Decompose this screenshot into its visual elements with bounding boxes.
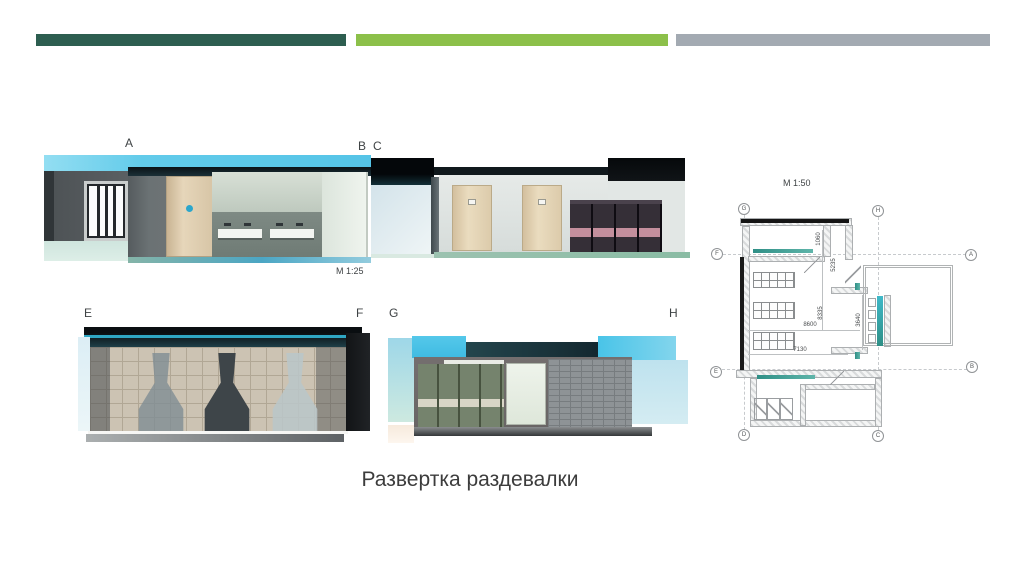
wall-corner-column — [431, 177, 439, 255]
window-pane — [100, 186, 105, 236]
scale-label-1-25: М 1:25 — [336, 266, 364, 276]
plan-wall-left-black — [740, 257, 744, 371]
dark-fascia-left — [371, 158, 434, 185]
ceiling-cyan-line — [84, 335, 362, 338]
door-swing — [804, 257, 820, 273]
plan-teal-mark — [855, 352, 860, 359]
plan-washbasin — [868, 322, 876, 331]
floor-plan: М 1:50 G H F A E B D C — [705, 175, 997, 463]
elevation-label-g: G — [389, 306, 399, 320]
faucet-icon — [224, 223, 231, 226]
grid-bubble-g: G — [738, 203, 750, 215]
dimension-line — [748, 354, 848, 355]
elevation-label-f: F — [356, 306, 364, 320]
dimension-7130: 7130 — [787, 346, 813, 354]
plan-bench-lockers — [753, 272, 795, 288]
plan-shower-stall — [754, 398, 767, 420]
wood-door — [522, 185, 562, 251]
plan-wall-top-black — [741, 219, 849, 223]
plan-wall-lower-bottom — [750, 420, 882, 427]
green-lockers — [418, 364, 504, 427]
grid-bubble-c: C — [872, 430, 884, 442]
slide-title: Развертка раздевалки — [300, 468, 640, 492]
baseboard-light — [371, 254, 434, 258]
wood-door — [166, 176, 214, 257]
elevation-label-b: B — [358, 139, 367, 153]
elevation-label-c: C — [373, 139, 382, 153]
plan-locker-band — [753, 249, 813, 253]
light-blue-wall — [632, 360, 688, 424]
grid-bubble-f: F — [711, 248, 723, 260]
dimension-5235: 5235 — [830, 252, 838, 278]
faucet-icon — [244, 223, 251, 226]
door-sign-plate — [538, 199, 546, 205]
cyan-band-left — [412, 336, 466, 358]
light-blue-wall — [371, 185, 431, 255]
scale-label-1-50: М 1:50 — [783, 178, 811, 188]
plan-shower-stall — [767, 398, 780, 420]
plan-washbasin — [868, 298, 876, 307]
light-edge-column — [388, 338, 414, 422]
elevation-ab — [44, 155, 371, 263]
roof-strip — [434, 167, 608, 175]
dimension-8600: 8600 — [797, 321, 823, 329]
accent-bar-light-green — [356, 34, 668, 46]
light-edge — [78, 337, 90, 431]
window — [84, 181, 128, 241]
plan-washstand-counter — [877, 296, 883, 346]
dimension-3640: 3640 — [855, 307, 863, 333]
mirror-band — [212, 172, 322, 212]
shade-left — [90, 347, 110, 431]
baseboard-green — [434, 252, 690, 258]
plan-wall-lower-inner-v — [800, 384, 806, 426]
plan-wall-right-upper — [845, 225, 853, 260]
accent-bar-gray — [676, 34, 990, 46]
dark-fascia-right — [608, 158, 685, 181]
wood-door — [452, 185, 492, 251]
window-pane — [116, 186, 123, 236]
plan-bench-lockers — [753, 302, 795, 319]
elevation-label-h: H — [669, 306, 678, 320]
grid-bubble-b: B — [966, 361, 978, 373]
door-sign-plate — [468, 199, 476, 205]
dark-lockers — [570, 200, 662, 252]
faucet-icon — [296, 223, 303, 226]
elevation-label-e: E — [84, 306, 93, 320]
plan-washbasin — [868, 334, 876, 343]
window-pane — [89, 186, 97, 236]
floor-patch — [388, 425, 414, 443]
aqua-base-panel — [44, 241, 128, 261]
sink-counter — [270, 229, 314, 238]
plan-locker-band — [757, 375, 815, 379]
faucet-icon — [276, 223, 283, 226]
dimension-1060: 1060 — [815, 226, 823, 252]
baseboard-dark — [414, 427, 652, 436]
dimension-line — [748, 330, 860, 331]
baseboard-gray — [86, 434, 344, 442]
door-sign-badge — [186, 205, 193, 212]
sink-counter — [218, 229, 262, 238]
accent-bar-dark-green — [36, 34, 346, 46]
plan-wall-lower-right — [875, 378, 882, 427]
baseboard-teal — [128, 257, 371, 263]
elevation-label-a: A — [125, 136, 134, 150]
locker-bench-strip — [418, 399, 504, 407]
light-wall-panel — [322, 172, 368, 257]
elevation-cd — [371, 155, 690, 262]
elevation-gh — [388, 333, 688, 443]
mirror-panel — [506, 363, 546, 425]
window-pane — [108, 186, 113, 236]
plan-washbasin — [868, 310, 876, 319]
brick-wall — [548, 359, 632, 427]
grid-bubble-e: E — [710, 366, 722, 378]
plan-teal-mark — [855, 283, 860, 290]
plan-shower-stall — [780, 398, 793, 420]
dark-end-column — [346, 333, 370, 431]
elevation-ef — [78, 325, 370, 443]
locker-bench-strip — [570, 228, 662, 237]
grid-bubble-d: D — [738, 429, 750, 441]
grid-bubble-h: H — [872, 205, 884, 217]
shade-right — [316, 347, 346, 431]
grid-bubble-a: A — [965, 249, 977, 261]
door-swing — [830, 371, 844, 385]
